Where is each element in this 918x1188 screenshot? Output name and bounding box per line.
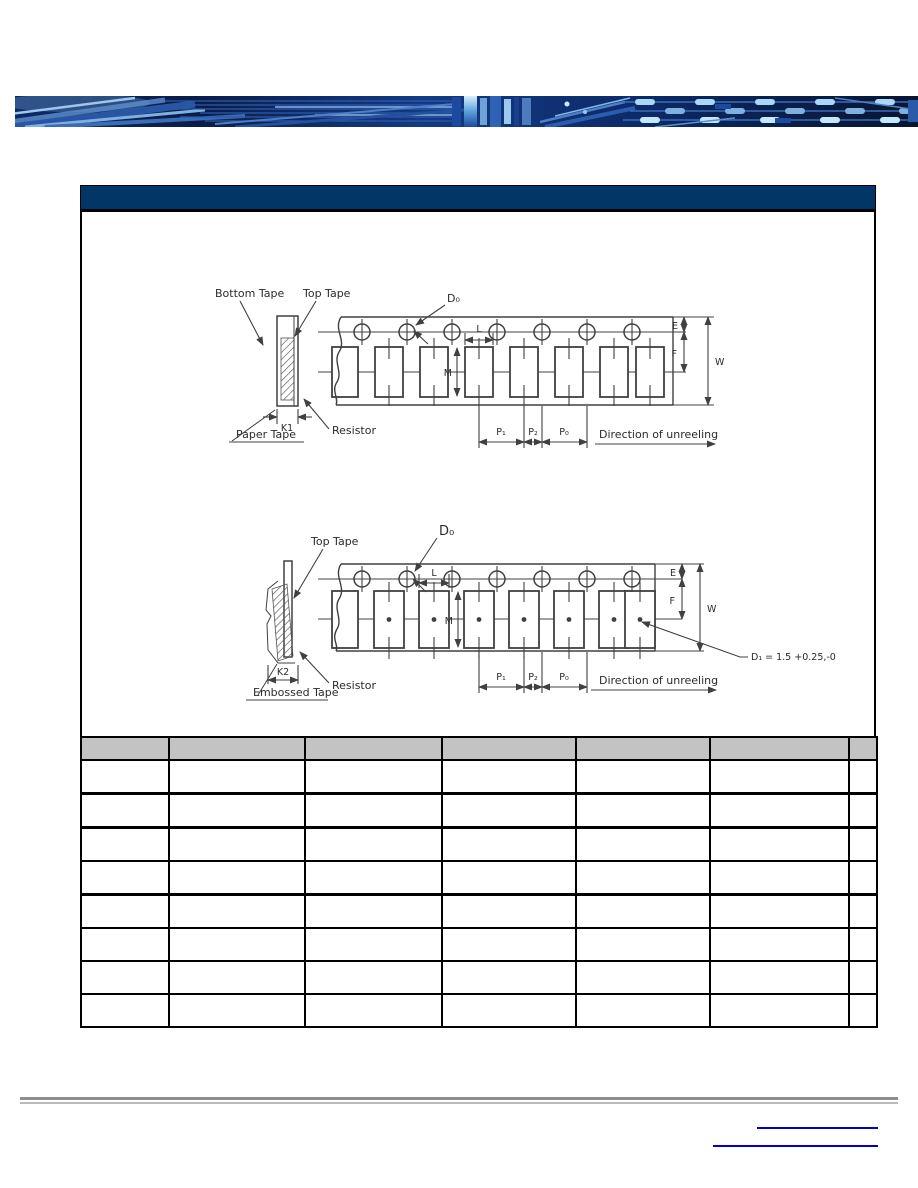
table-cell (710, 794, 849, 828)
table-cell (169, 994, 305, 1027)
table-header-cell (81, 737, 169, 760)
table-cell (81, 961, 169, 994)
table-cell (849, 861, 877, 895)
table-cell (442, 928, 576, 961)
table-row (81, 994, 877, 1027)
datasheet-page: Bottom Tape Top Tape K1 Paper Tape Resis… (0, 0, 918, 1188)
table-cell (305, 794, 442, 828)
table-cell (305, 828, 442, 862)
table-cell (710, 760, 849, 794)
table-row (81, 961, 877, 994)
table-cell (305, 994, 442, 1027)
table-cell (710, 994, 849, 1027)
table-row (81, 760, 877, 794)
footer-divider (20, 1097, 898, 1104)
table-cell (169, 828, 305, 862)
table-cell (442, 760, 576, 794)
resistor-label: Resistor (332, 679, 376, 692)
table-header-cell (576, 737, 710, 760)
table-cell (576, 794, 710, 828)
table-cell (81, 895, 169, 929)
table-cell (442, 861, 576, 895)
table-cell (81, 861, 169, 895)
table-cell (169, 961, 305, 994)
paper-tape-label: Paper Tape (236, 428, 296, 441)
table-header-cell (305, 737, 442, 760)
table-cell (81, 928, 169, 961)
paper-tape-diagram: Bottom Tape Top Tape K1 Paper Tape Resis… (215, 287, 725, 448)
table-header-cell (169, 737, 305, 760)
footer-link-1[interactable] (757, 1127, 878, 1129)
embossed-tape-label: Embossed Tape (253, 686, 339, 699)
table-cell (576, 828, 710, 862)
table-cell (305, 861, 442, 895)
table-cell (849, 828, 877, 862)
table-cell (576, 760, 710, 794)
direction-of-unreeling-label: Direction of unreeling (599, 674, 718, 687)
table-cell (576, 961, 710, 994)
table-cell (169, 794, 305, 828)
table-cell (849, 794, 877, 828)
f-label: F (670, 596, 675, 607)
table-cell (576, 895, 710, 929)
table-cell (849, 895, 877, 929)
p2-label: P₂ (528, 427, 538, 438)
table-row (81, 861, 877, 895)
table-cell (442, 828, 576, 862)
content-frame: Bottom Tape Top Tape K1 Paper Tape Resis… (80, 185, 876, 1048)
table-cell (81, 760, 169, 794)
table-cell (576, 928, 710, 961)
table-cell (576, 861, 710, 895)
w-label: W (707, 604, 717, 615)
circuit-board-banner (15, 96, 918, 127)
table-header-cell (442, 737, 576, 760)
top-tape-label: Top Tape (310, 535, 359, 548)
tape-diagrams-figure: Bottom Tape Top Tape K1 Paper Tape Resis… (82, 212, 874, 736)
table-cell (710, 861, 849, 895)
p1-label: P₁ (496, 672, 506, 683)
table-cell (169, 760, 305, 794)
d1-note-label: D₁ = 1.5 +0.25,-0 (751, 652, 836, 663)
p0-label: P₀ (559, 427, 569, 438)
table-cell (81, 794, 169, 828)
table-cell (442, 994, 576, 1027)
table-cell (710, 828, 849, 862)
dimension-table (80, 736, 878, 1028)
table-cell (169, 928, 305, 961)
table-cell (576, 994, 710, 1027)
d0-label: D₀ (447, 292, 460, 305)
table-row (81, 794, 877, 828)
table-row (81, 895, 877, 929)
table-cell (305, 760, 442, 794)
p1-label: P₁ (496, 427, 506, 438)
table-cell (81, 828, 169, 862)
k2-label: K2 (277, 667, 289, 678)
table-header-cell (849, 737, 877, 760)
dimension-table-head (81, 737, 877, 760)
diagram-area: Bottom Tape Top Tape K1 Paper Tape Resis… (80, 210, 876, 738)
embossed-tape-diagram: Top Tape K2 Embossed Tape Resistor (246, 524, 836, 700)
footer-link-2[interactable] (713, 1145, 878, 1147)
dimension-table-body (81, 760, 877, 1027)
table-cell (81, 994, 169, 1027)
l-label: L (476, 324, 482, 335)
w-label: W (715, 357, 725, 368)
table-row (81, 828, 877, 862)
top-tape-label: Top Tape (302, 287, 351, 300)
table-cell (442, 895, 576, 929)
table-cell (849, 760, 877, 794)
e-label: E (672, 321, 678, 332)
l-label: L (431, 568, 437, 579)
direction-of-unreeling-label: Direction of unreeling (599, 428, 718, 441)
table-cell (710, 895, 849, 929)
table-cell (849, 928, 877, 961)
d0-label: D₀ (439, 524, 454, 539)
f-label: F (672, 349, 677, 360)
table-cell (710, 961, 849, 994)
table-cell (305, 961, 442, 994)
table-cell (849, 961, 877, 994)
table-header-cell (710, 737, 849, 760)
m-label: M (444, 368, 452, 379)
table-cell (849, 994, 877, 1027)
table-cell (305, 928, 442, 961)
table-cell (169, 895, 305, 929)
table-cell (710, 928, 849, 961)
section-header-bar (80, 185, 876, 210)
table-cell (305, 895, 442, 929)
p0-label: P₀ (559, 672, 569, 683)
e-label: E (670, 568, 676, 579)
resistor-label: Resistor (332, 424, 376, 437)
m-label: M (445, 616, 453, 627)
table-cell (442, 961, 576, 994)
table-cell (169, 861, 305, 895)
p2-label: P₂ (528, 672, 538, 683)
table-cell (442, 794, 576, 828)
bottom-tape-label: Bottom Tape (215, 287, 284, 300)
table-row (81, 928, 877, 961)
